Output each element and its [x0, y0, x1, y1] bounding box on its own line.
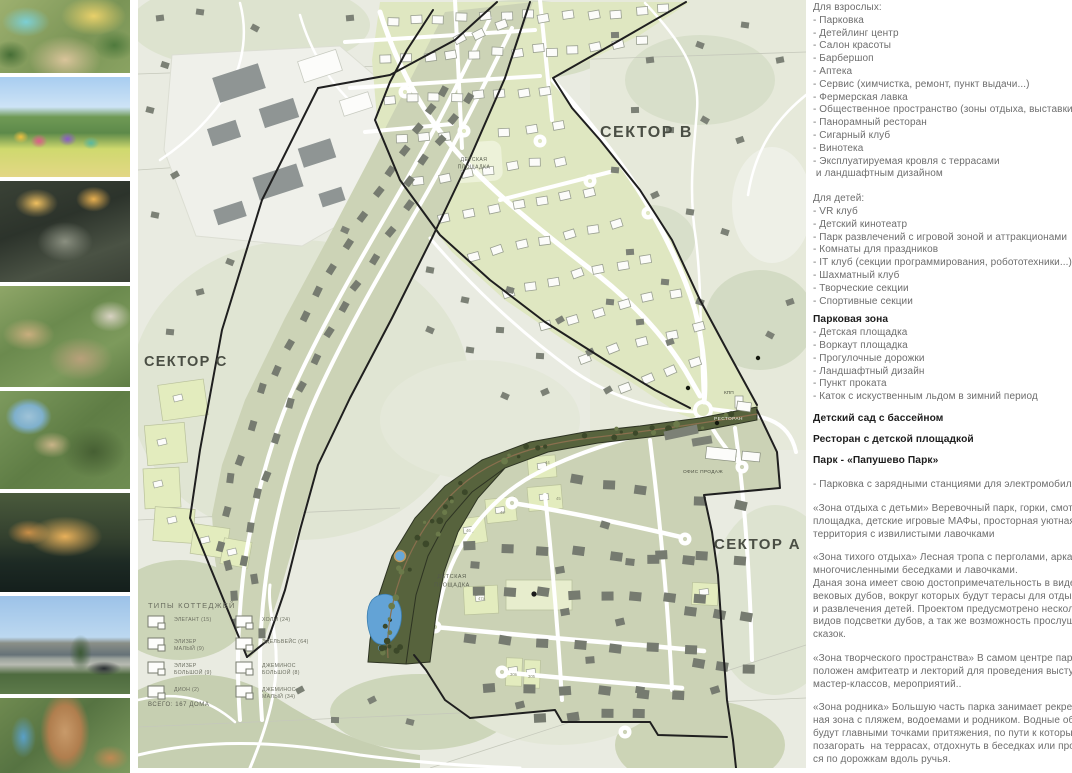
legend-item-left-1: ЭЛИЗЕР: [174, 639, 197, 645]
parcel-number: 44: [545, 460, 550, 465]
legend-title: ТИПЫ КОТТЕДЖЕЙ: [148, 601, 236, 610]
park-pond-small: [395, 551, 406, 562]
legend-item-right-3: МАЛЫЙ (34): [262, 692, 295, 700]
legend-item-left-2: ЭЛИЗЕР: [174, 663, 197, 669]
legend-item-right-1: ЭДЕЛЬВЕЙС (64): [262, 637, 309, 645]
parcel-number: 305: [528, 674, 536, 679]
photo-evening-deck: [0, 493, 130, 592]
masterplan-board: { "sidebar": { "photos": [ {"alt": "aeri…: [0, 0, 1072, 768]
photo-aerial-playground: [0, 0, 130, 73]
panel-block-8: «Зона отдыха с детьми» Веревочный парк, …: [813, 503, 1072, 541]
legend-item-right-2: ДЖЕМИНОС: [262, 663, 296, 669]
panel-block-0: Для взрослых: - Парковка - Детейлинг цен…: [813, 2, 1072, 181]
legend-total: ВСЕГО: 167 ДОМА: [148, 702, 209, 708]
legend-item-right-2: БОЛЬШОЙ (8): [262, 668, 300, 676]
playground-top-label: ДЕТСКАЯ: [461, 157, 488, 163]
parcel-number: 42: [500, 510, 505, 515]
panel-block-6: Парк - «Папушево Парк»: [813, 455, 1072, 468]
legend-item-left-1: МАЛЫЙ (9): [174, 644, 204, 652]
sector-b-label: СЕКТОР B: [600, 124, 693, 141]
photo-forest-pond: [0, 391, 130, 489]
panel-block-1: Для детей: - VR клуб - Детский кинотеатр…: [813, 193, 1072, 308]
legend-item-right-3: ДЖЕМИНОС: [262, 687, 296, 693]
photo-sales-office: [0, 596, 130, 694]
panel-block-11: «Зона родника» Большую часть парка заним…: [813, 702, 1072, 766]
panel-block-9: «Зона тихого отдыха» Лесная тропа с перг…: [813, 552, 1072, 642]
sector-a-label: СЕКТОР A: [714, 536, 801, 553]
photo-night-park: [0, 181, 130, 282]
svg-text:ПЛОЩАДКА: ПЛОЩАДКА: [458, 165, 491, 171]
panel-block-7: - Парковка с зарядными станциями для эле…: [813, 479, 1072, 492]
render-photo-sidebar: [0, 0, 138, 768]
legend-item-left-3: ДИОН (2): [174, 687, 199, 693]
parcel-number: 47а: [478, 596, 486, 601]
svg-text:ПЛОЩАДКА: ПЛОЩАДКА: [434, 583, 470, 589]
legend-item-left-2: БОЛЬШОЙ (9): [174, 668, 212, 676]
parcel-number: 45: [556, 496, 561, 501]
legend-item-right-0: ХОЛМ (24): [262, 617, 290, 623]
kpp-label: КПП: [724, 390, 734, 396]
sales-office-label: ОФИС ПРОДАЖ: [683, 469, 723, 475]
panel-block-10: «Зона творческого пространства» В самом …: [813, 653, 1072, 691]
panel-block-3: - Детская площадка - Воркаут площадка - …: [813, 327, 1072, 404]
parcel-number: 30в: [510, 672, 518, 677]
program-text-panel: Для взрослых: - Парковка - Детейлинг цен…: [806, 0, 1072, 768]
legend-item-left-0: ЭЛЕГАНТ (15): [174, 617, 212, 623]
restaurant-label: РЕСТОРАН: [714, 416, 743, 422]
panel-block-2: Парковая зона: [813, 314, 1072, 327]
parcel-number: 46: [466, 528, 471, 533]
photo-wooden-tower: [0, 698, 130, 773]
sector-c-label: СЕКТОР C: [144, 354, 228, 370]
photo-amphitheater: [0, 286, 130, 387]
playground-bottom-label: ДЕТСКАЯ: [437, 574, 466, 580]
restaurant-building: [736, 401, 751, 412]
panel-block-5: Ресторан с детской площадкой: [813, 434, 1072, 447]
photo-kids-playground: [0, 77, 130, 177]
panel-block-4: Детский сад с бассейном: [813, 413, 1072, 426]
